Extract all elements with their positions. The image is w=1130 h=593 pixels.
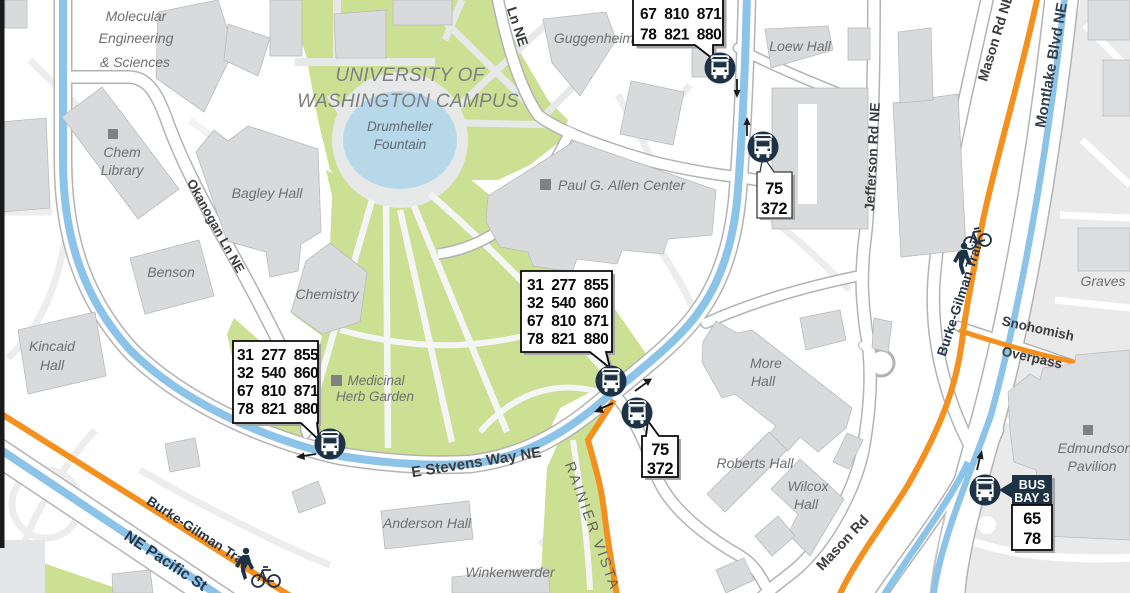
svg-text:65: 65 <box>1023 510 1041 528</box>
svg-text:Roberts Hall: Roberts Hall <box>716 455 794 471</box>
svg-text:Molecular: Molecular <box>106 8 168 24</box>
svg-text:78: 78 <box>1023 530 1041 548</box>
svg-text:372: 372 <box>761 200 788 218</box>
svg-text:Hall: Hall <box>40 357 65 373</box>
svg-text:372: 372 <box>647 460 674 478</box>
svg-text:Hall: Hall <box>794 496 819 512</box>
svg-text:31 277 855: 31 277 855 <box>527 277 609 294</box>
svg-text:Chemistry: Chemistry <box>295 286 359 302</box>
svg-text:67 810 871: 67 810 871 <box>640 6 722 23</box>
svg-text:32 540 860: 32 540 860 <box>527 295 608 312</box>
svg-text:78 821 880: 78 821 880 <box>237 401 318 418</box>
svg-text:Medicinal: Medicinal <box>347 373 405 388</box>
svg-text:78 821 880: 78 821 880 <box>640 27 721 44</box>
svg-text:Guggenheim: Guggenheim <box>554 30 635 46</box>
svg-text:75: 75 <box>765 180 783 198</box>
svg-text:67 810 871: 67 810 871 <box>237 383 319 400</box>
svg-text:Hall: Hall <box>751 373 776 389</box>
svg-text:Loew Hall: Loew Hall <box>769 38 831 54</box>
svg-text:Kincaid: Kincaid <box>29 338 76 354</box>
svg-text:32 540 860: 32 540 860 <box>237 365 318 382</box>
svg-text:Engineering: Engineering <box>99 30 174 46</box>
svg-text:Bagley Hall: Bagley Hall <box>232 185 304 201</box>
svg-text:Wilcox: Wilcox <box>787 478 829 494</box>
svg-text:31 277 855: 31 277 855 <box>237 347 319 364</box>
svg-text:Graves: Graves <box>1080 273 1125 289</box>
svg-text:Anderson Hall: Anderson Hall <box>382 515 472 531</box>
svg-text:UNIVERSITY OF: UNIVERSITY OF <box>335 65 485 86</box>
svg-text:More: More <box>750 355 782 371</box>
svg-text:Benson: Benson <box>147 264 195 280</box>
svg-text:Paul G. Allen Center: Paul G. Allen Center <box>558 177 686 193</box>
svg-text:BAY 3: BAY 3 <box>1014 491 1049 505</box>
svg-text:Drumheller: Drumheller <box>367 119 434 134</box>
svg-text:78 821 880: 78 821 880 <box>527 331 608 348</box>
svg-text:Pavilion: Pavilion <box>1067 458 1116 474</box>
svg-text:Fountain: Fountain <box>374 137 427 152</box>
svg-text:Edmundson: Edmundson <box>1058 440 1130 456</box>
svg-text:Library: Library <box>101 162 145 178</box>
svg-text:Herb Garden: Herb Garden <box>336 389 414 404</box>
svg-text:75: 75 <box>651 441 669 459</box>
svg-text:Chem: Chem <box>103 144 141 160</box>
svg-text:Winkenwerder: Winkenwerder <box>465 564 556 580</box>
svg-text:WASHINGTON CAMPUS: WASHINGTON CAMPUS <box>297 91 519 112</box>
svg-text:BUS: BUS <box>1019 478 1045 492</box>
svg-text:& Sciences: & Sciences <box>100 54 170 70</box>
svg-text:67 810 871: 67 810 871 <box>527 313 609 330</box>
